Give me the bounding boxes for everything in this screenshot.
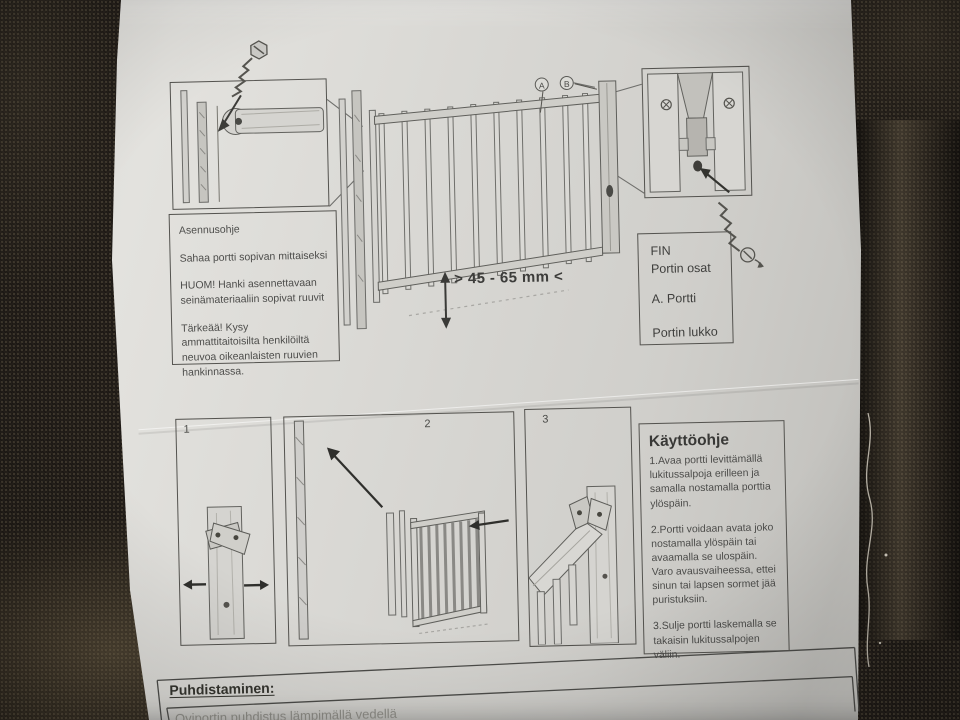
cleaning-title: Puhdistaminen: (169, 680, 274, 698)
arrow-icon (244, 580, 269, 591)
usage-step: 2.Portti voidaan avata joko nostamalla y… (651, 521, 779, 609)
arrow-icon (183, 579, 206, 590)
lock-detail-panel (641, 66, 752, 198)
lock-detail-drawing (642, 67, 750, 196)
step-number: 1 (183, 424, 189, 436)
step-panel-2: 2 (283, 411, 519, 646)
sheet-content: Asennusohje Sahaa portti sopivan mittais… (0, 0, 960, 720)
parts-item-a: A. Portti (651, 289, 731, 307)
step2-drawing (284, 412, 517, 644)
photo-scene: Asennusohje Sahaa portti sopivan mittais… (0, 0, 960, 720)
dimension-arrow-icon (440, 272, 451, 329)
step-number: 3 (542, 413, 548, 425)
step3-drawing (525, 408, 634, 645)
arrow-icon (327, 446, 382, 508)
dimension-label: > 45 - 65 mm < (454, 268, 563, 287)
step-panel-1: 1 (175, 417, 276, 646)
step1-drawing (176, 418, 274, 644)
installation-line: Tärkeää! Kysy ammattitaitoisilta henkilö… (181, 318, 330, 380)
gate-slats (379, 93, 592, 293)
installation-line: Sahaa portti sopivan mittaiseksi (179, 248, 327, 266)
usage-title: Käyttöohje (649, 428, 775, 452)
gate-drawing (329, 69, 635, 336)
screw-icon (203, 36, 279, 100)
step-number: 2 (424, 418, 430, 430)
parts-title: Portin osat (651, 260, 731, 278)
usage-step: 3.Sulje portti laskemalla se takaisin lu… (653, 618, 780, 663)
parts-item-b: Portin lukko (652, 323, 732, 341)
installation-note-box: Asennusohje Sahaa portti sopivan mittais… (169, 210, 340, 365)
installation-line: HUOM! Hanki asennettavaan seinämateriaal… (180, 276, 329, 309)
arrow-icon (469, 519, 509, 530)
step-panel-3: 3 (524, 407, 636, 647)
usage-instructions-box: Käyttöohje 1.Avaa portti levittämällä lu… (638, 420, 789, 654)
installation-title: Asennusohje (179, 220, 327, 238)
usage-step: 1.Avaa portti levittämällä lukitussalpoj… (649, 452, 776, 511)
parts-list-box: FIN Portin osat A. Portti Portin lukko (637, 231, 734, 345)
hinge-detail-drawing (171, 79, 328, 207)
parts-lang: FIN (650, 241, 730, 259)
